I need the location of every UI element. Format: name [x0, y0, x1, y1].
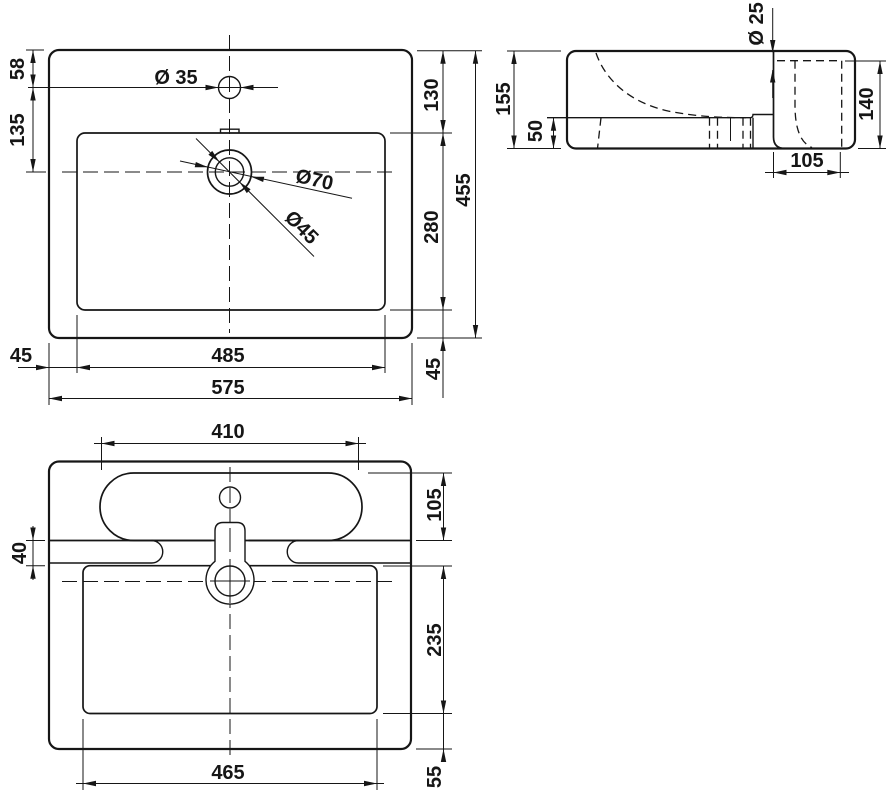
- arrowhead: [30, 50, 35, 63]
- arrowhead: [440, 51, 445, 64]
- arrowhead: [441, 566, 446, 579]
- arrowhead: [440, 120, 445, 133]
- dim-label-235: 235: [424, 623, 446, 656]
- dim-label-diam35: Ø 35: [154, 67, 197, 89]
- dim-label-575: 575: [211, 377, 244, 399]
- arrowhead: [77, 365, 90, 370]
- basin-inner-bowl: [77, 133, 385, 310]
- arrowhead: [364, 781, 377, 786]
- arrowhead: [441, 701, 446, 714]
- arrowhead: [511, 51, 516, 64]
- dim-label-diam45: Ø45: [280, 207, 322, 249]
- arrowhead: [441, 473, 446, 486]
- arrowhead: [195, 162, 209, 170]
- dim-label-130: 130: [421, 78, 443, 111]
- arrowhead: [473, 51, 478, 64]
- arrowhead: [346, 441, 359, 446]
- arrowhead: [83, 781, 96, 786]
- arrowhead: [473, 325, 478, 338]
- dim-label-105-side: 105: [790, 150, 823, 172]
- arrowhead: [241, 85, 254, 90]
- arrowhead: [102, 441, 115, 446]
- dim-label-465: 465: [211, 762, 244, 784]
- drawing-canvas: 58 135 Ø 35 Ø70 Ø45 130 280 455 45 45 48…: [0, 0, 886, 800]
- arrowhead: [770, 70, 775, 83]
- dim-label-455: 455: [453, 173, 475, 206]
- arrowhead: [774, 170, 787, 175]
- arrowhead: [36, 365, 49, 370]
- arrowhead: [441, 528, 446, 541]
- dim-label-105-bottom: 105: [424, 488, 446, 521]
- arrowhead: [49, 396, 62, 401]
- dim-label-45-left: 45: [10, 345, 32, 367]
- arrowhead: [30, 75, 35, 88]
- arrowhead: [877, 61, 882, 74]
- arrowhead: [440, 133, 445, 146]
- side-profile-outline: [567, 51, 855, 149]
- arrowhead: [30, 566, 35, 579]
- arrowhead: [372, 365, 385, 370]
- dim-label-diam70: Ø70: [293, 165, 335, 195]
- side-view: Ø 25 155 50 140 105: [493, 2, 886, 178]
- dim-label-410: 410: [211, 421, 244, 443]
- arrowhead: [30, 528, 35, 541]
- mounting-slot-left: [49, 541, 163, 564]
- dim-label-55: 55: [424, 766, 446, 788]
- mounting-slot-right: [287, 541, 411, 564]
- technical-drawing-page: 58 135 Ø 35 Ø70 Ø45 130 280 455 45 45 48…: [0, 0, 886, 800]
- arrowhead: [250, 174, 264, 182]
- dim-label-140: 140: [856, 87, 878, 120]
- bottom-view: 410 105 40 235 465 55: [9, 421, 452, 790]
- arrowhead: [30, 88, 35, 101]
- dim-label-485: 485: [211, 345, 244, 367]
- arrowhead: [551, 136, 556, 149]
- dim-label-50: 50: [525, 120, 547, 142]
- arrowhead: [551, 118, 556, 131]
- arrowhead: [877, 136, 882, 149]
- dim-label-135: 135: [7, 113, 29, 146]
- dim-label-155: 155: [493, 82, 515, 115]
- arrowhead: [511, 136, 516, 149]
- dim-label-45-right: 45: [423, 358, 445, 380]
- bowl-hidden-curve: [596, 53, 746, 118]
- arrowhead: [440, 297, 445, 310]
- bowl-hidden-edge: [598, 118, 602, 149]
- dim-label-40: 40: [9, 542, 31, 564]
- dim-label-280: 280: [421, 210, 443, 243]
- arrowhead: [399, 396, 412, 401]
- arrowhead: [441, 749, 446, 762]
- overflow-hidden-channel: [795, 61, 812, 148]
- dim-label-58: 58: [7, 58, 29, 80]
- top-view: 58 135 Ø 35 Ø70 Ø45 130 280 455 45 45 48…: [7, 35, 482, 405]
- recess-step-edge: [750, 115, 774, 118]
- back-face-edge: [774, 51, 786, 149]
- arrowhead: [440, 338, 445, 351]
- arrowhead: [30, 159, 35, 172]
- arrowhead: [206, 85, 219, 90]
- arrowhead: [827, 170, 840, 175]
- dim-label-diam25: Ø 25: [746, 2, 768, 45]
